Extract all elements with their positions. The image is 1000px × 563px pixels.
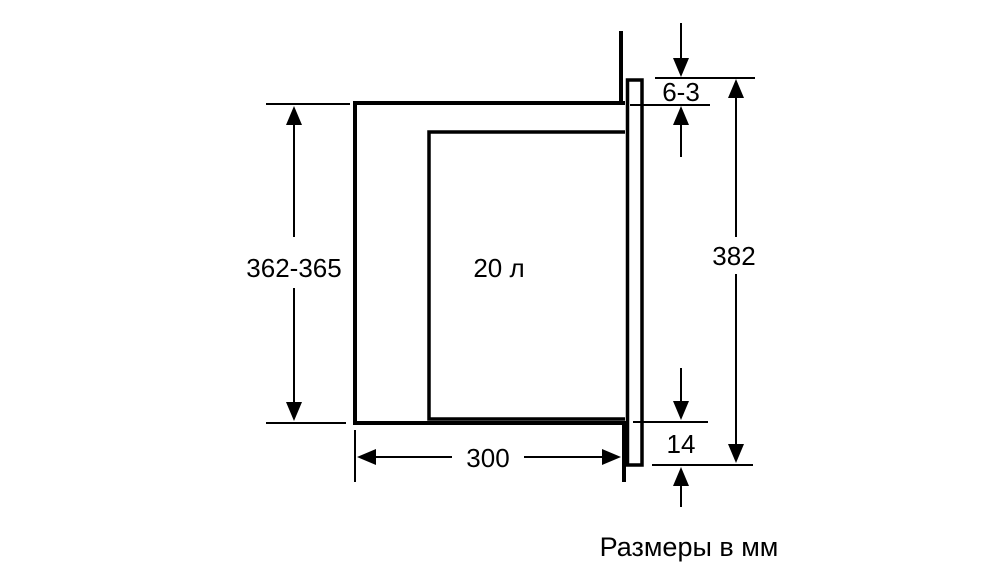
dimension-depth: 300 <box>355 430 621 482</box>
arrowhead-down-icon <box>286 402 302 421</box>
depth-label: 300 <box>466 443 509 473</box>
dimension-niche-height: 362-365 <box>246 104 350 423</box>
arrowhead-down-icon <box>673 58 689 77</box>
top-gap-label: 6-3 <box>662 77 700 107</box>
arrowhead-right-icon <box>602 449 621 465</box>
installation-dimension-diagram: 362-365 20 л 300 6-3 <box>0 0 1000 563</box>
arrowhead-up-icon <box>673 467 689 486</box>
cavity-outline <box>429 132 625 419</box>
front-panel <box>628 80 643 465</box>
cavity-volume-label: 20 л <box>473 253 524 283</box>
dimension-panel-height: 382 <box>652 79 756 465</box>
arrowhead-up-icon <box>286 106 302 125</box>
niche-height-label: 362-365 <box>246 253 341 283</box>
bottom-overlap-label: 14 <box>667 429 696 459</box>
arrowhead-up-icon <box>673 106 689 125</box>
panel-height-label: 382 <box>712 241 755 271</box>
arrowhead-left-icon <box>357 449 376 465</box>
arrowhead-up-icon <box>728 79 744 98</box>
units-caption: Размеры в мм <box>600 532 779 562</box>
dimension-bottom-overlap: 14 <box>633 368 708 507</box>
arrowhead-down-icon <box>673 401 689 420</box>
arrowhead-down-icon <box>728 444 744 463</box>
